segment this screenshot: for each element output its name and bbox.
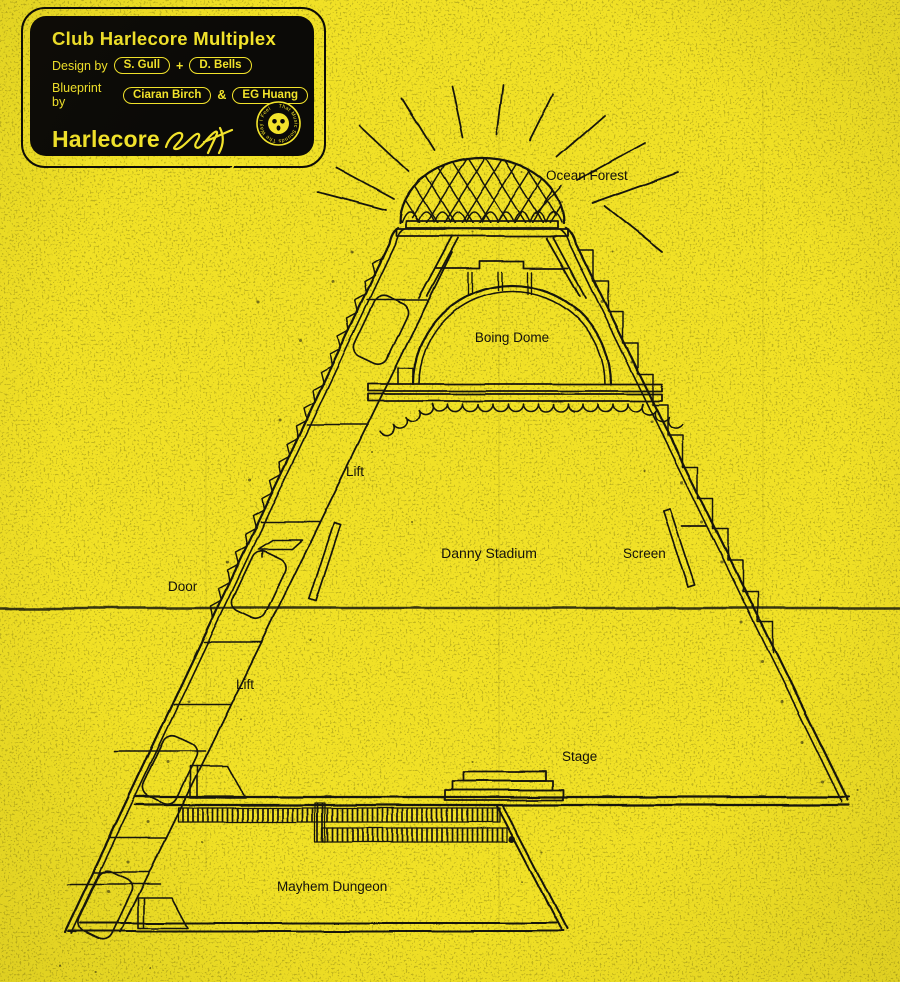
badge-icon: That Music Sounds The Way I Feel — [255, 100, 302, 147]
blueprint-prefix: Blueprint by — [52, 81, 117, 109]
plus-joiner: + — [176, 59, 183, 73]
designer-pill-2: D. Bells — [189, 57, 251, 74]
card-title: Club Harlecore Multiplex — [52, 28, 308, 50]
info-card: Club Harlecore Multiplex Design by S. Gu… — [30, 16, 314, 156]
badge-face-icon — [268, 113, 289, 134]
logo-scribble-icon — [162, 123, 236, 157]
blueprint-poster: Ocean Forest Boing Dome Lift Danny Stadi… — [0, 0, 900, 982]
design-prefix: Design by — [52, 59, 108, 73]
designer-pill-1: S. Gull — [114, 57, 170, 74]
design-byline: Design by S. Gull + D. Bells — [52, 57, 308, 74]
blueprint-pill-1: Ciaran Birch — [123, 87, 211, 104]
logo-text: Harlecore — [52, 128, 160, 151]
amp-joiner: & — [217, 88, 226, 102]
